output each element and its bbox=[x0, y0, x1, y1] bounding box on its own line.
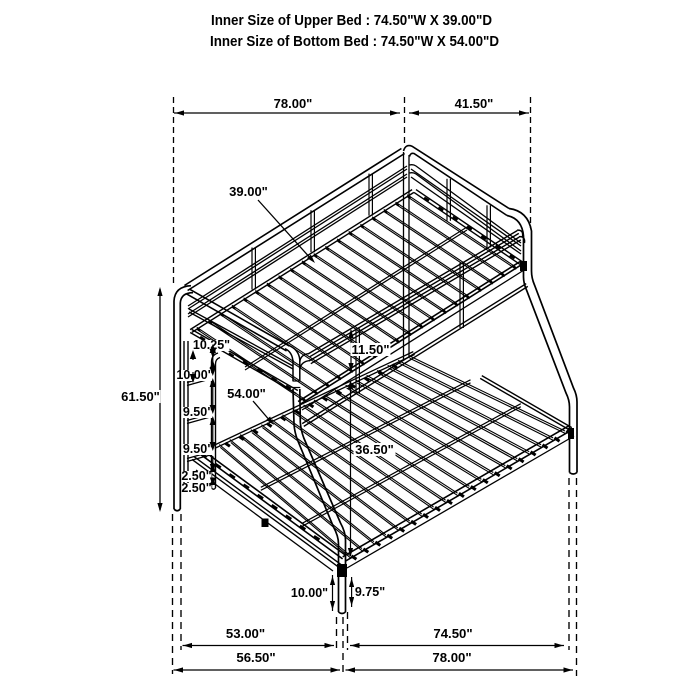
svg-text:53.00": 53.00" bbox=[226, 626, 265, 641]
svg-text:56.50": 56.50" bbox=[236, 650, 275, 665]
svg-text:Inner Size of Upper Bed : 74.5: Inner Size of Upper Bed : 74.50"W X 39.0… bbox=[211, 12, 492, 29]
svg-text:78.00": 78.00" bbox=[432, 650, 471, 665]
svg-text:61.50": 61.50" bbox=[121, 389, 160, 404]
svg-text:36.50": 36.50" bbox=[355, 442, 394, 457]
svg-text:9.50": 9.50" bbox=[183, 405, 213, 419]
svg-text:9.75": 9.75" bbox=[355, 585, 385, 599]
svg-text:2.50": 2.50" bbox=[181, 481, 211, 495]
svg-text:11.50": 11.50" bbox=[352, 342, 390, 357]
svg-text:41.50": 41.50" bbox=[455, 96, 494, 111]
svg-text:78.00": 78.00" bbox=[274, 96, 313, 111]
svg-text:10.00": 10.00" bbox=[291, 586, 328, 600]
svg-text:74.50": 74.50" bbox=[433, 626, 472, 641]
svg-text:39.00": 39.00" bbox=[229, 184, 268, 199]
svg-text:Inner Size of Bottom Bed : 74.: Inner Size of Bottom Bed : 74.50"W X 54.… bbox=[210, 33, 499, 50]
svg-text:9.50": 9.50" bbox=[183, 442, 213, 456]
svg-text:54.00": 54.00" bbox=[227, 386, 266, 401]
